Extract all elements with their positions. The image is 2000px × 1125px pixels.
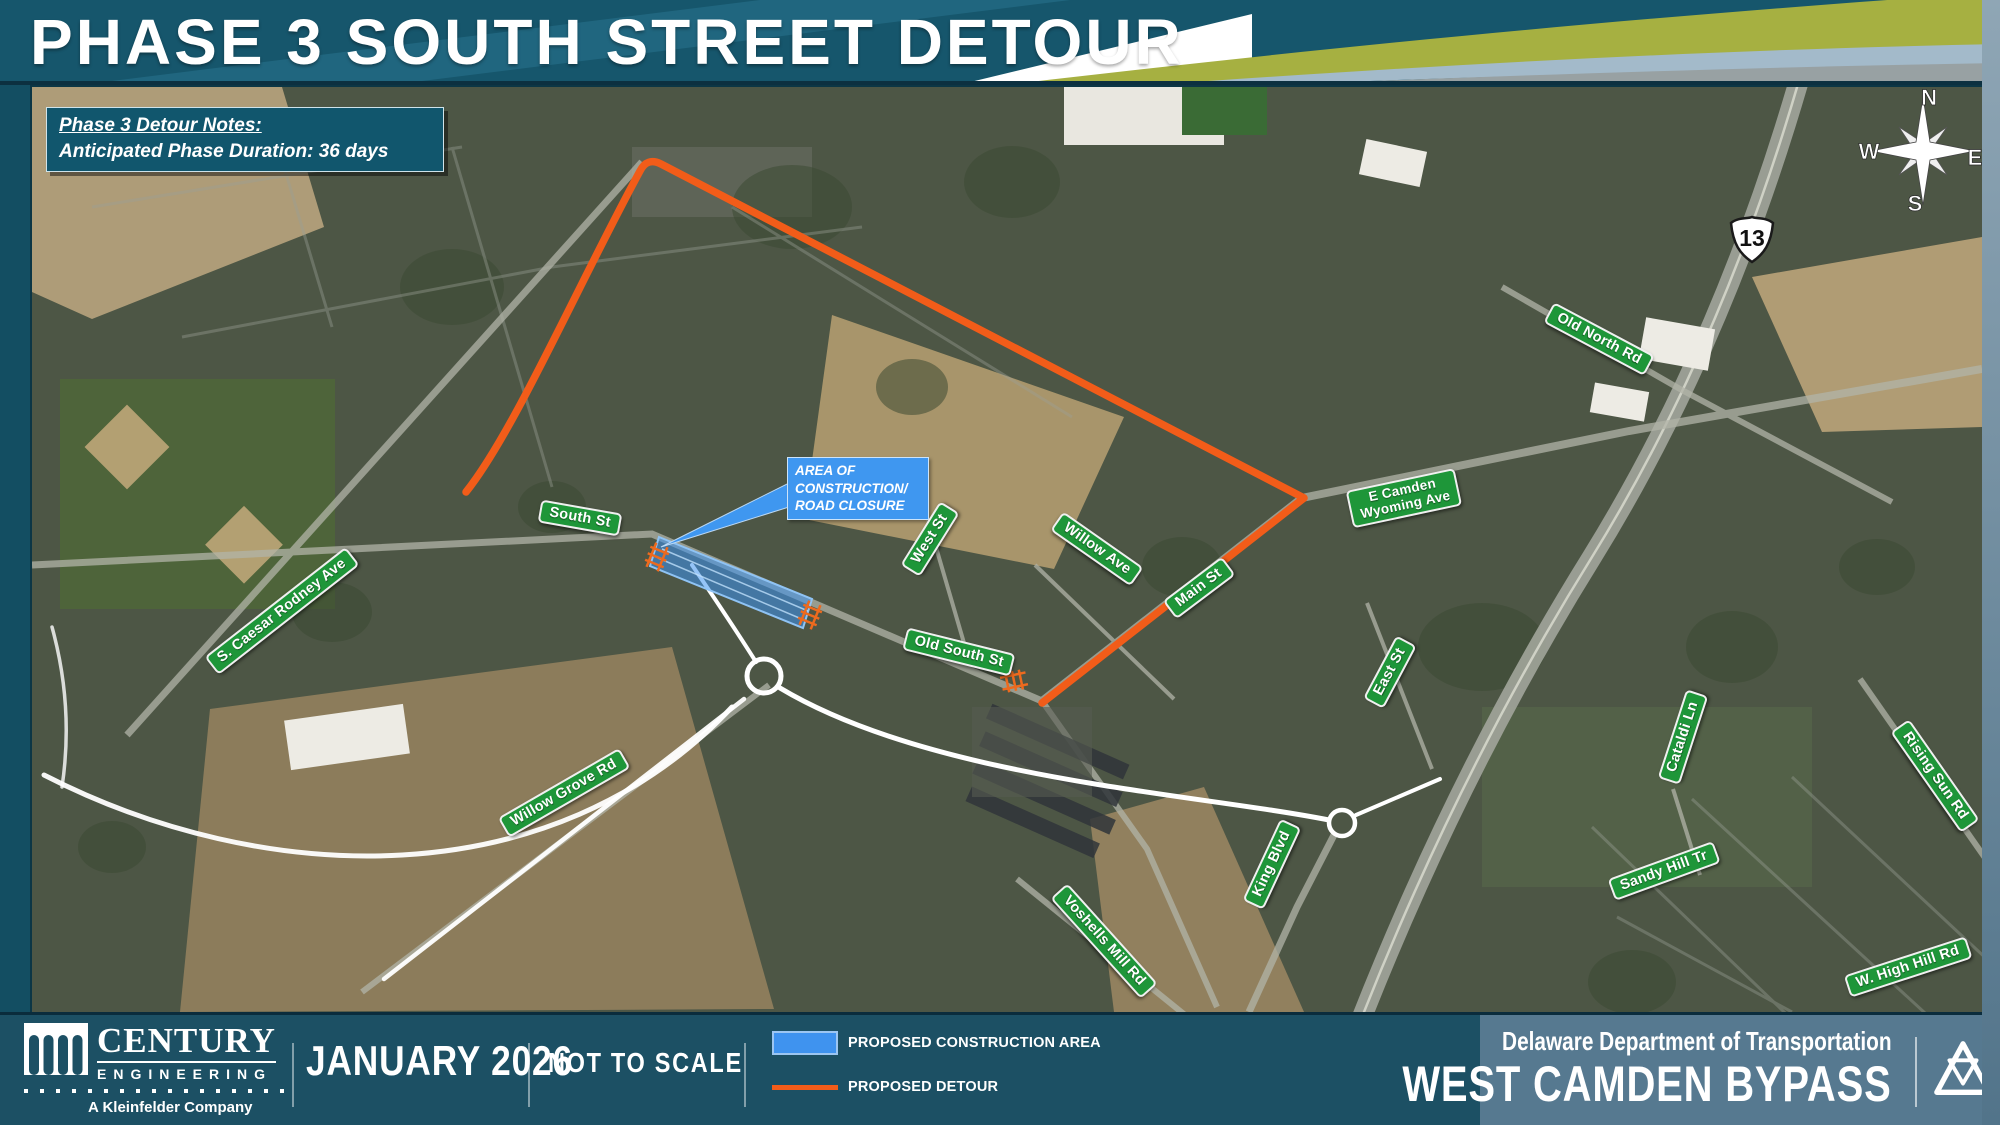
aerial-detour-map: 13 N E S W Phase 3 Detour Notes: Anticip…: [30, 85, 1984, 1016]
footer-divider: [292, 1043, 294, 1107]
century-engineering-logo: CENTURY ENGINEERING A Kleinfelder Compan…: [24, 1023, 292, 1116]
construction-callout: AREA OF CONSTRUCTION/ ROAD CLOSURE: [787, 457, 929, 520]
legend-label: PROPOSED CONSTRUCTION AREA: [848, 1035, 1101, 1051]
detour-line-swatch: [772, 1085, 838, 1090]
callout-line: CONSTRUCTION/: [795, 480, 921, 498]
legend-item-construction: PROPOSED CONSTRUCTION AREA: [772, 1029, 1101, 1057]
footer-bar: CENTURY ENGINEERING A Kleinfelder Compan…: [0, 1012, 2000, 1125]
footer-divider: [528, 1043, 530, 1107]
plan-date: JANUARY 2026: [306, 1037, 573, 1085]
legend-item-detour: PROPOSED DETOUR: [772, 1073, 1101, 1101]
detour-plan-sheet: PHASE 3 SOUTH STREET DETOUR: [0, 0, 2000, 1125]
century-wordmark: CENTURY: [97, 1023, 276, 1058]
century-dots-rule: [24, 1089, 292, 1093]
callout-line: AREA OF: [795, 462, 921, 480]
page-title: PHASE 3 SOUTH STREET DETOUR: [30, 6, 1184, 78]
notes-heading: Phase 3 Detour Notes:: [59, 113, 431, 139]
callout-line: ROAD CLOSURE: [795, 497, 921, 515]
kleinfelder-tagline: A Kleinfelder Company: [24, 1099, 292, 1116]
century-arches-icon: [24, 1023, 88, 1075]
footer-divider: [744, 1043, 746, 1107]
aerial-map-graphic: 13 N E S W: [32, 87, 1982, 1014]
engineering-wordmark: ENGINEERING: [97, 1061, 276, 1082]
notes-duration: Anticipated Phase Duration: 36 days: [59, 139, 431, 165]
svg-text:N: N: [1921, 87, 1937, 110]
svg-text:W: W: [1859, 139, 1880, 164]
legend-label: PROPOSED DETOUR: [848, 1079, 998, 1095]
svg-text:S: S: [1908, 191, 1923, 216]
page-edge-strip: [1982, 0, 2000, 1125]
svg-text:13: 13: [1739, 225, 1765, 251]
scale-note: NOT TO SCALE: [548, 1047, 743, 1079]
footer-divider: [1915, 1037, 1917, 1107]
footer-right-panel: Delaware Department of Transportation WE…: [1480, 1015, 2000, 1125]
construction-area-swatch: [772, 1031, 838, 1055]
agency-name: Delaware Department of Transportation: [1403, 1027, 1892, 1056]
map-legend: PROPOSED CONSTRUCTION AREA PROPOSED DETO…: [772, 1029, 1101, 1117]
svg-text:E: E: [1968, 145, 1982, 170]
title-banner: PHASE 3 SOUTH STREET DETOUR: [0, 0, 2000, 85]
detour-notes-box: Phase 3 Detour Notes: Anticipated Phase …: [46, 107, 444, 172]
project-title: WEST CAMDEN BYPASS: [1403, 1056, 1892, 1114]
